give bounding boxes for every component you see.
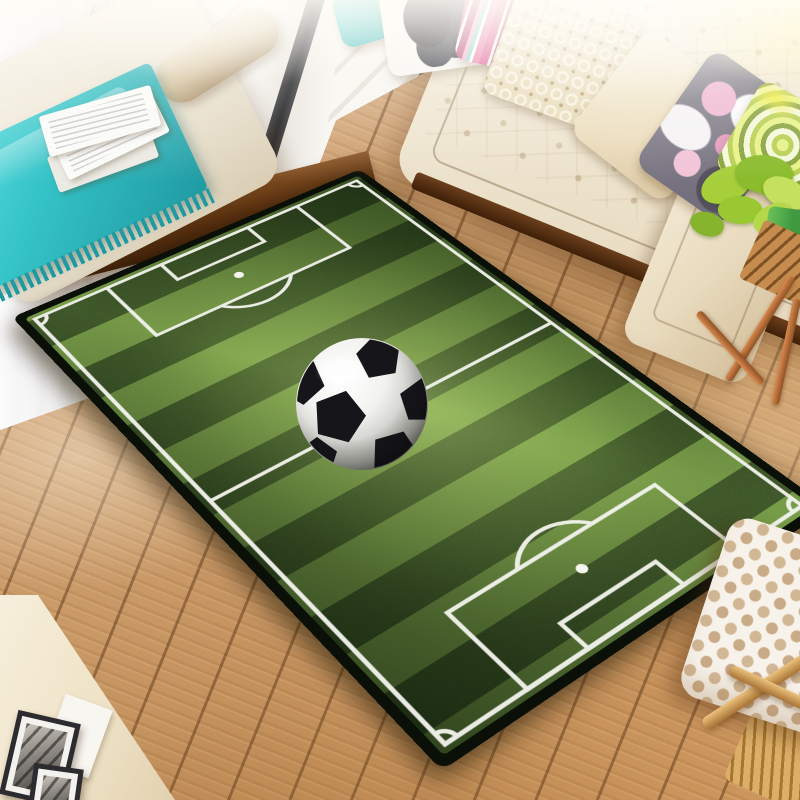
ball-highlight <box>320 358 360 382</box>
living-room-photo <box>0 0 800 800</box>
ball-shading <box>296 338 428 470</box>
frame-photo <box>39 775 72 800</box>
soccer-ball <box>295 337 429 471</box>
picture-frame <box>26 763 84 800</box>
soccer-ball-graphic <box>295 337 429 471</box>
